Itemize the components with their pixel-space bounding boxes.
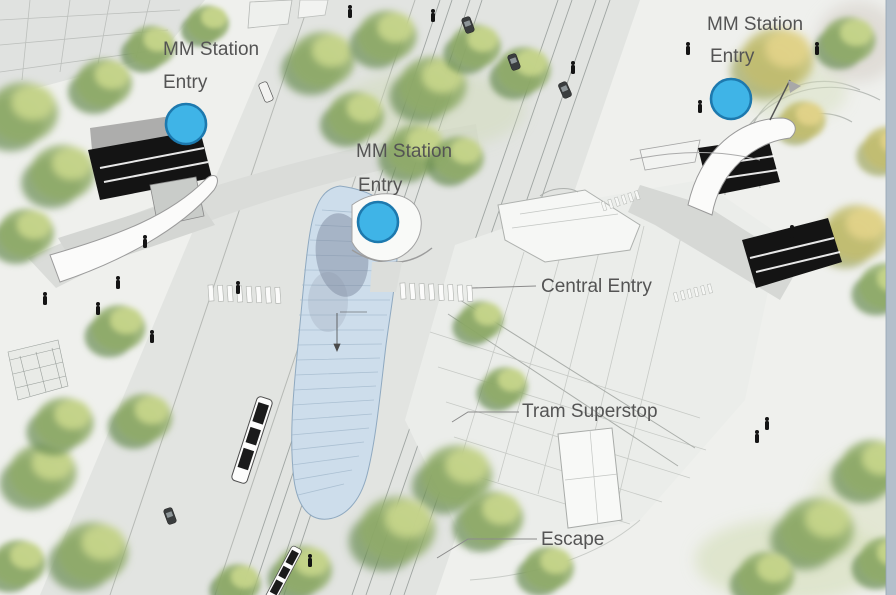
entry-marker-center — [358, 202, 398, 242]
right-edge-strip — [886, 0, 896, 595]
rendering-canvas: MM Station Entry MM Station Entry MM Sta… — [0, 0, 896, 595]
label-mm-station-right-line1: MM Station — [707, 14, 803, 35]
label-central-entry: Central Entry — [541, 276, 652, 297]
entry-marker-right — [711, 79, 751, 119]
label-tram-superstop: Tram Superstop — [522, 401, 658, 422]
label-mm-station-center-line2: Entry — [358, 175, 403, 196]
label-escape: Escape — [541, 529, 604, 550]
label-mm-station-left-line2: Entry — [163, 72, 208, 93]
escape-shaft-structure — [558, 428, 622, 528]
entry-marker-left — [166, 104, 206, 144]
label-mm-station-left-line1: MM Station — [163, 39, 259, 60]
label-mm-station-center-line1: MM Station — [356, 141, 452, 162]
label-mm-station-right-line2: Entry — [710, 46, 755, 67]
